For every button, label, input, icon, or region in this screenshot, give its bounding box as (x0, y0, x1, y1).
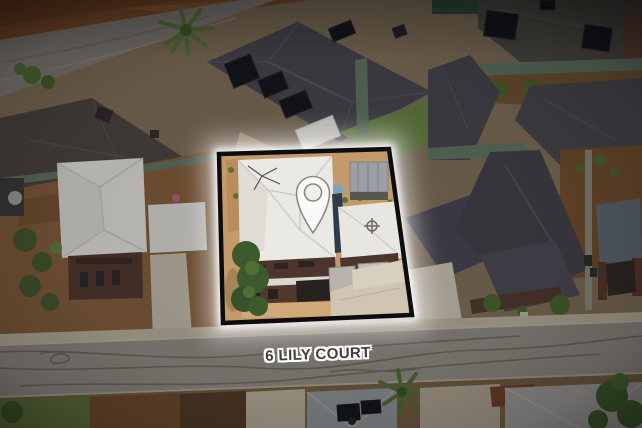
aerial-photo: 6 LILY COURT (0, 0, 642, 428)
garage-opening (296, 279, 332, 302)
aerial-scene (0, 0, 642, 428)
lot-shed (350, 162, 388, 200)
top-shade (0, 0, 642, 60)
